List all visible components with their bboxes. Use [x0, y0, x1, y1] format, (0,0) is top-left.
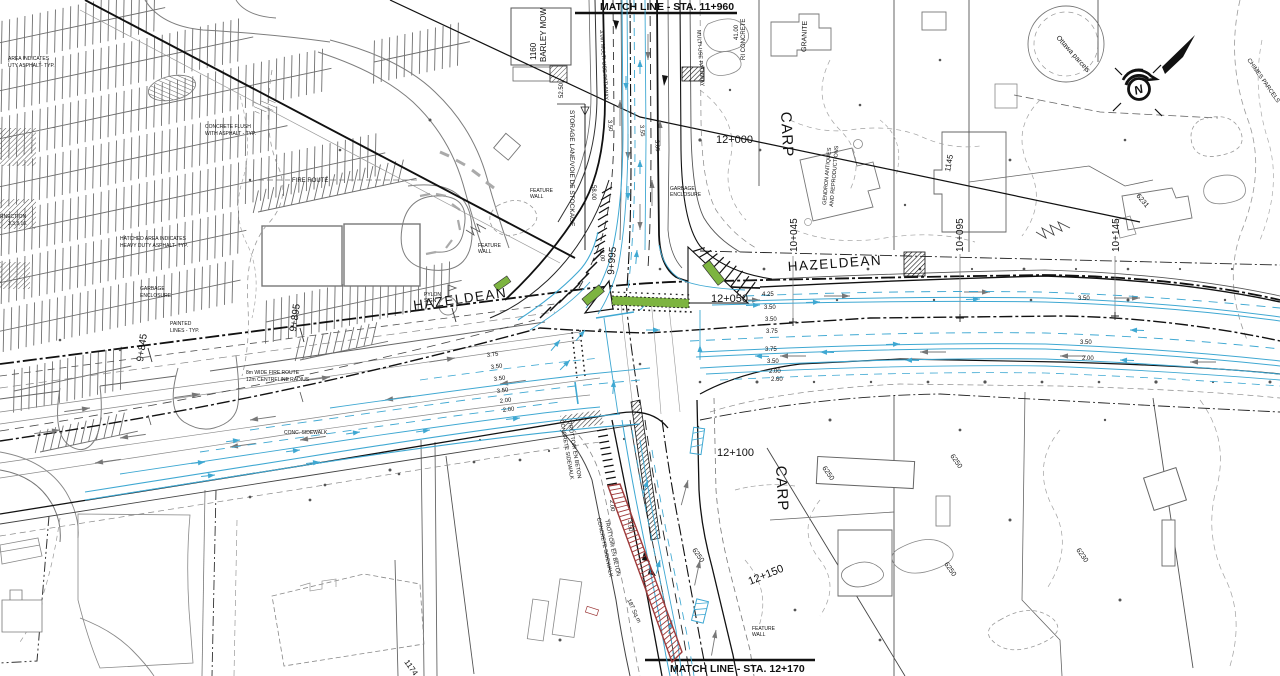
svg-text:UTY ASPHALT- TYP.: UTY ASPHALT- TYP.: [8, 63, 55, 69]
svg-text:12+050: 12+050: [711, 293, 748, 305]
svg-text:CARP: CARP: [772, 465, 791, 512]
svg-text:HEAVY DUTY ASPHALT- TYP.: HEAVY DUTY ASPHALT- TYP.: [120, 243, 188, 249]
svg-text:AREA INDICATES: AREA INDICATES: [8, 56, 50, 62]
svg-text:HATCHED AREA INDICATES: HATCHED AREA INDICATES: [120, 236, 187, 242]
svg-text:10+145: 10+145: [1111, 218, 1122, 252]
svg-text:3.50: 3.50: [1080, 340, 1092, 346]
svg-text:RNECTION: RNECTION: [0, 214, 27, 220]
svg-text:ENCLOSURE: ENCLOSURE: [670, 192, 702, 198]
svg-text:MATCH LINE - STA. 12+170: MATCH LINE - STA. 12+170: [670, 663, 805, 675]
svg-text:WITH ASPHALT - TYP.: WITH ASPHALT - TYP.: [205, 131, 256, 137]
svg-text:58.00: 58.00: [590, 185, 596, 201]
svg-text:CONC. SIDEWALK: CONC. SIDEWALK: [284, 430, 328, 436]
svg-text:CONCRETE FLUSH: CONCRETE FLUSH: [205, 124, 251, 130]
svg-text:3.50: 3.50: [765, 317, 777, 323]
svg-text:3.50: 3.50: [626, 520, 633, 533]
svg-text:ENCLOSURE: ENCLOSURE: [140, 293, 172, 299]
svg-text:3.75: 3.75: [765, 347, 777, 353]
svg-text:3.50: 3.50: [606, 120, 613, 133]
svg-text:52.50: 52.50: [559, 82, 565, 98]
svg-text:10+095: 10+095: [955, 218, 966, 252]
svg-text:12+000: 12+000: [716, 134, 753, 146]
svg-text:SIGN: SIGN: [424, 298, 437, 304]
svg-text:2.00: 2.00: [598, 250, 605, 263]
svg-text:BARLEY MOW: BARLEY MOW: [539, 7, 548, 62]
svg-text:41.00: 41.00: [734, 24, 740, 40]
svg-text:2.00: 2.00: [769, 369, 781, 375]
svg-text:STORAGE LANE/VOIE DE STOCKAGE: STORAGE LANE/VOIE DE STOCKAGE: [568, 110, 575, 227]
svg-text:PAINTED: PAINTED: [170, 321, 192, 327]
svg-text:2.60: 2.60: [771, 377, 783, 383]
svg-text:3.50: 3.50: [764, 305, 776, 311]
svg-text:2.00: 2.00: [1082, 356, 1094, 362]
svg-text:3.50: 3.50: [767, 359, 779, 365]
svg-text:RI CONCRETE: RI CONCRETE: [741, 19, 747, 60]
svg-text:FIRE ROUTE: FIRE ROUTE: [292, 178, 328, 184]
svg-text:GARBAGE: GARBAGE: [140, 286, 165, 292]
svg-text:MATCH LINE - STA. 11+960: MATCH LINE - STA. 11+960: [600, 1, 734, 13]
svg-text:8m WIDE FIRE ROUTE: 8m WIDE FIRE ROUTE: [246, 370, 300, 376]
svg-text:3,3,3,16.: 3,3,3,16.: [8, 221, 27, 227]
svg-text:9+995: 9+995: [606, 246, 619, 275]
svg-text:3.65: 3.65: [653, 140, 660, 153]
svg-text:WALL: WALL: [752, 632, 766, 638]
svg-text:GRANITE: GRANITE: [801, 20, 809, 52]
svg-text:CARP: CARP: [777, 111, 796, 158]
svg-text:1160: 1160: [529, 42, 538, 60]
svg-text:3.75: 3.75: [766, 329, 778, 335]
svg-text:12+100: 12+100: [717, 447, 754, 459]
svg-text:3.50: 3.50: [1078, 296, 1090, 302]
svg-text:4.25: 4.25: [762, 292, 774, 298]
svg-text:3.55: 3.55: [638, 125, 645, 138]
svg-text:WALL: WALL: [478, 249, 492, 255]
svg-text:WALL: WALL: [530, 194, 544, 200]
svg-text:12m CENTRELINE RADIUS: 12m CENTRELINE RADIUS: [246, 377, 310, 383]
svg-text:LINES - TYP.: LINES - TYP.: [170, 328, 199, 334]
svg-text:10+045: 10+045: [789, 218, 800, 252]
